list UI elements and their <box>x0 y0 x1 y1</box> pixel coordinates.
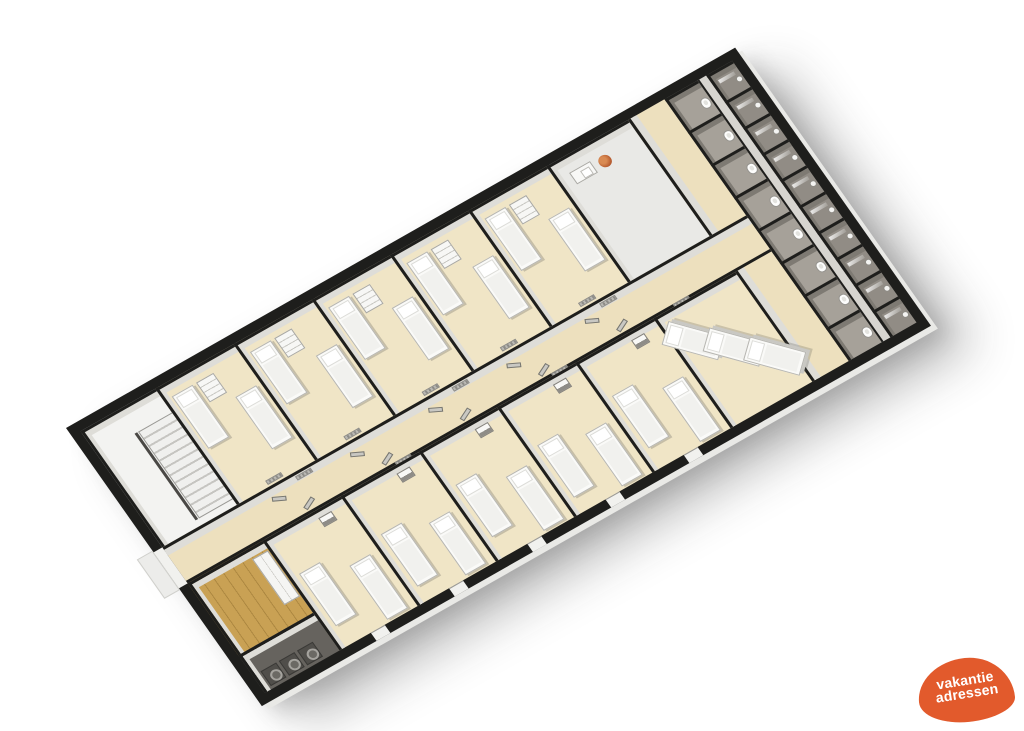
plant <box>596 153 615 170</box>
floorplan-scene <box>0 0 1024 731</box>
door <box>616 319 628 333</box>
glass <box>773 150 791 162</box>
glass <box>829 228 847 240</box>
sink <box>475 422 494 438</box>
sink <box>553 378 572 394</box>
radiator <box>295 468 314 481</box>
door <box>303 496 315 510</box>
building-3d-floorplan <box>66 48 931 707</box>
showerhead <box>845 231 855 240</box>
sink <box>396 466 415 482</box>
sink <box>318 511 337 527</box>
glass <box>792 176 810 188</box>
door <box>272 496 287 502</box>
showerhead <box>882 284 892 293</box>
door <box>381 452 393 466</box>
radiator <box>599 295 618 308</box>
glass <box>847 255 865 267</box>
door <box>584 318 599 324</box>
door <box>428 407 443 413</box>
showerhead <box>808 179 818 188</box>
glass <box>884 307 902 319</box>
radiator <box>451 379 470 392</box>
door <box>506 362 521 368</box>
glass <box>810 202 828 214</box>
showerhead <box>753 100 763 109</box>
showerhead <box>900 310 910 319</box>
showerhead <box>734 74 744 83</box>
door <box>350 451 365 457</box>
showerhead <box>863 258 873 267</box>
glass <box>755 124 773 136</box>
showerhead <box>771 127 781 136</box>
glass <box>718 71 736 83</box>
vakantieadressen-logo: vakantie adressen <box>918 658 1014 722</box>
door <box>460 407 472 421</box>
glass <box>736 98 754 110</box>
counter <box>569 161 598 184</box>
sink <box>631 333 650 349</box>
showerhead <box>790 153 800 162</box>
glass <box>865 281 883 293</box>
door <box>538 363 550 377</box>
showerhead <box>827 205 837 214</box>
